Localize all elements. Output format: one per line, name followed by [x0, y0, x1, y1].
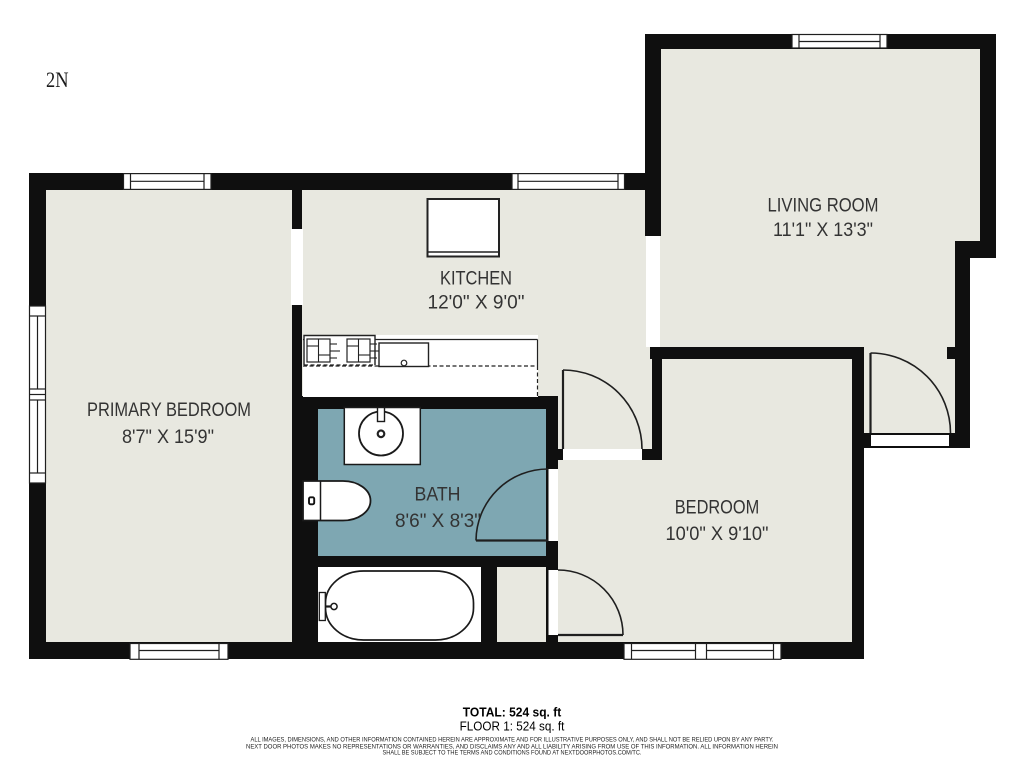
svg-text:BATH: BATH [415, 484, 461, 506]
svg-text:2N: 2N [46, 67, 69, 92]
svg-text:LIVING ROOM: LIVING ROOM [768, 195, 879, 217]
svg-text:TOTAL: 524 sq. ft: TOTAL: 524 sq. ft [463, 706, 562, 720]
svg-text:SHALL BE SUBJECT TO THE TERMS: SHALL BE SUBJECT TO THE TERMS AND CONDIT… [383, 750, 642, 757]
svg-text:8'6" X 8'3": 8'6" X 8'3" [395, 510, 481, 532]
svg-text:11'1" X 13'3": 11'1" X 13'3" [773, 219, 873, 241]
svg-text:8'7" X 15'9": 8'7" X 15'9" [122, 426, 214, 448]
svg-text:10'0" X 9'10": 10'0" X 9'10" [666, 523, 769, 545]
svg-text:12'0" X 9'0": 12'0" X 9'0" [428, 292, 525, 314]
svg-text:BEDROOM: BEDROOM [675, 497, 760, 519]
svg-text:KITCHEN: KITCHEN [440, 268, 512, 290]
svg-text:FLOOR 1: 524 sq. ft: FLOOR 1: 524 sq. ft [460, 720, 565, 734]
svg-text:PRIMARY BEDROOM: PRIMARY BEDROOM [87, 399, 251, 421]
